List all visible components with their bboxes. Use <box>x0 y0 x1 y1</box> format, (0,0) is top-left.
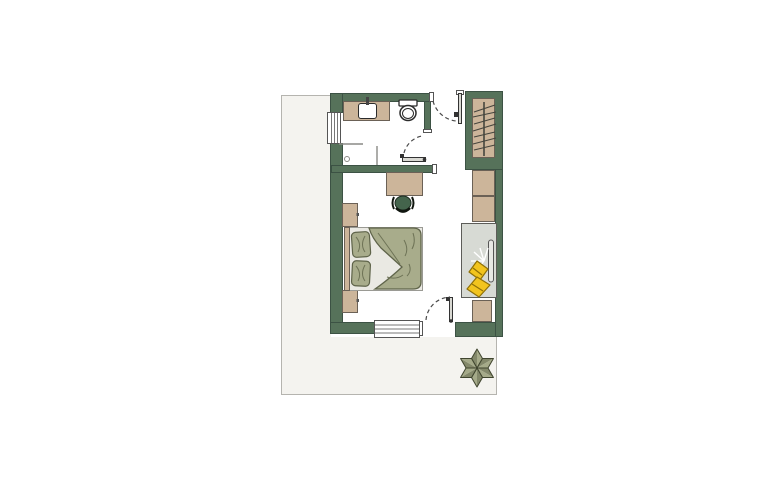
balcony-window <box>374 320 420 338</box>
floor-plan-canvas <box>0 0 780 492</box>
wall-bottom-left <box>330 322 376 334</box>
entry-door-leaf <box>458 93 462 124</box>
wall-stub-toilet <box>424 101 431 130</box>
wardrobe-interior <box>472 98 495 158</box>
bathroom-door-leaf <box>402 157 426 162</box>
entry-door-handle <box>454 112 458 117</box>
bed-mattress <box>349 227 423 291</box>
cabinet-shelf-upper <box>472 170 495 196</box>
daybed <box>461 223 497 298</box>
sink-basin <box>358 103 377 119</box>
entry-door-frame-cap <box>429 92 434 102</box>
corner-cabinet <box>472 300 492 322</box>
wall-left-upper <box>330 93 343 113</box>
balcony-door-handle <box>446 297 450 301</box>
nightstand-lower <box>342 290 358 313</box>
bathroom-door-knob <box>400 154 404 158</box>
bathroom-window <box>327 112 341 144</box>
nightstand-upper <box>342 203 358 227</box>
bed-headboard <box>344 227 350 291</box>
toilet-wall-cap <box>423 129 432 133</box>
desk <box>386 172 423 196</box>
cabinet-shelf-lower <box>472 196 495 222</box>
partition-wall-cap <box>432 164 437 174</box>
